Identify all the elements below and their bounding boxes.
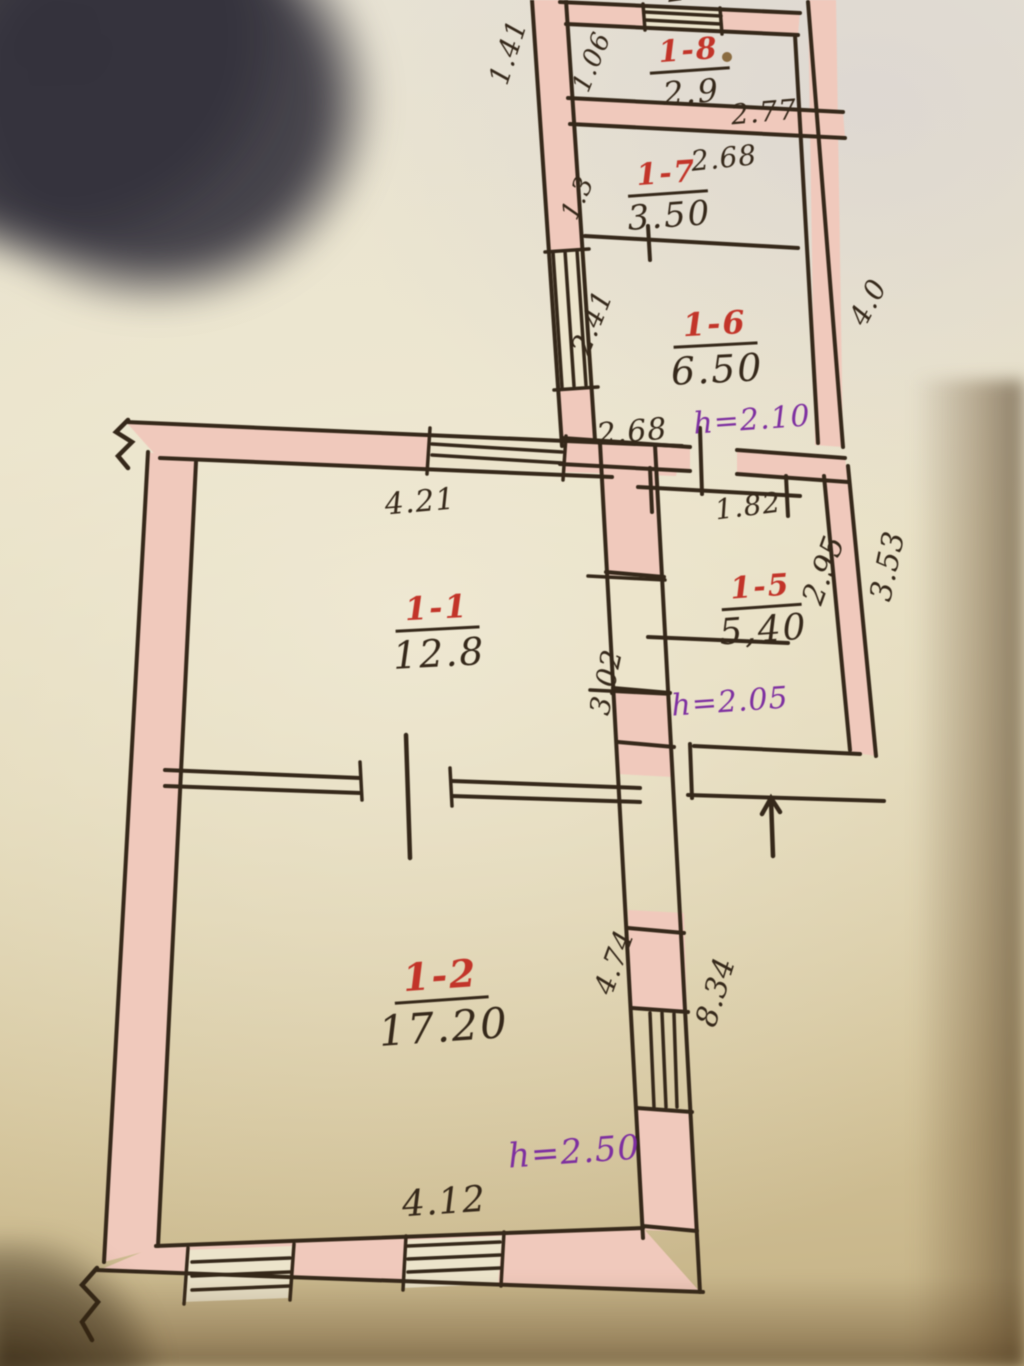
room-area: 5,40 bbox=[718, 606, 809, 653]
room-number: 1-6 bbox=[672, 302, 758, 348]
dim-2-68-bottom: 2.68 bbox=[595, 411, 669, 452]
room-label-1-8: 1-8 2.9 bbox=[647, 30, 732, 113]
room-label-1-1: 1-1 12.8 bbox=[389, 586, 486, 678]
dim-2-77: 2.77 bbox=[730, 93, 799, 132]
photo-of-floor-plan: 1-8 2.9 1-7 3.50 1-6 6.50 1-5 5,40 1-1 1… bbox=[0, 0, 1024, 1366]
room-area: 3.50 bbox=[626, 193, 712, 239]
room-number: 1-2 bbox=[391, 949, 489, 1004]
window-right-1-2 bbox=[650, 1013, 677, 1107]
entrance-arrow bbox=[762, 798, 780, 856]
dim-4-21: 4.21 bbox=[383, 481, 457, 522]
room-area: 17.20 bbox=[377, 998, 510, 1056]
room-label-1-6: 1-6 6.50 bbox=[667, 302, 764, 394]
room-label-1-2: 1-2 17.20 bbox=[374, 948, 511, 1056]
room-label-1-5: 1-5 5,40 bbox=[715, 567, 809, 654]
room-area: 12.8 bbox=[392, 629, 487, 678]
room-number: 1-1 bbox=[394, 586, 480, 632]
floor-plan: 1-8 2.9 1-7 3.50 1-6 6.50 1-5 5,40 1-1 1… bbox=[0, 0, 1024, 1366]
dim-2-68-top: 2.68 bbox=[689, 138, 758, 178]
room-number: 1-5 bbox=[719, 567, 802, 611]
room-area: 2.9 bbox=[662, 71, 721, 113]
room-number: 1-8 bbox=[647, 30, 730, 74]
wall-fills bbox=[95, 0, 876, 1302]
dim-4-12: 4.12 bbox=[401, 1179, 488, 1226]
room-area: 6.50 bbox=[670, 345, 765, 394]
